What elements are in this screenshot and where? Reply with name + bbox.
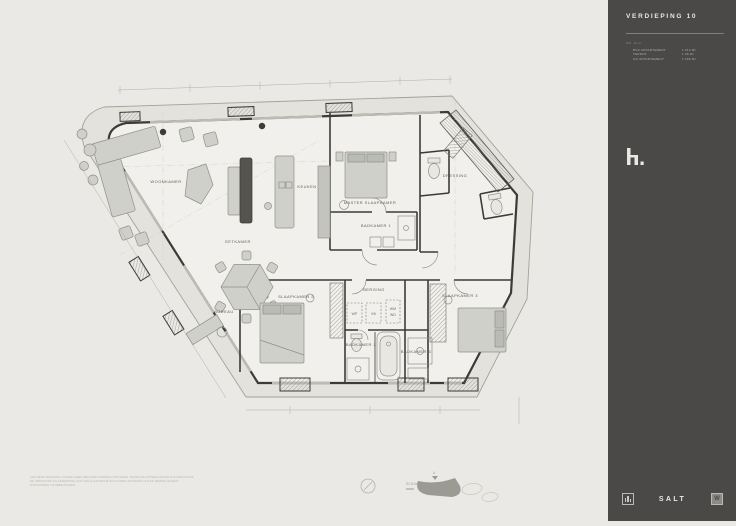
- bar: [627, 496, 628, 502]
- kitchen-island: [275, 156, 294, 228]
- kitchen-cabinets: [318, 166, 330, 238]
- compass-needle: [364, 482, 372, 490]
- plan-area: WOONKAMER EETKAMER KEUKEN MASTER SLAAPKA…: [0, 0, 608, 521]
- legend: SCHAAL 1:100 A: [361, 471, 499, 503]
- toilet: [428, 158, 440, 179]
- apartment-number: NR. 10.2: [626, 41, 726, 45]
- divider: [626, 33, 724, 34]
- room-label-slaapkamer3: SLAAPKAMER 3: [442, 293, 478, 298]
- armchair: [203, 131, 219, 147]
- brand-monogram-h-icon: [627, 148, 647, 172]
- plant: [77, 129, 87, 139]
- site-locator-map: A: [417, 471, 498, 503]
- plant: [84, 144, 96, 156]
- appliance-label-wd: WD: [390, 313, 396, 317]
- disclaimer-line-2: DE INRICHTING EN AFWERKING ZIJN TER ILLU…: [30, 479, 179, 483]
- info-value: ± 186 M²: [682, 57, 696, 62]
- bar: [630, 499, 631, 502]
- master-bed: [336, 152, 396, 198]
- disclaimer-line-1: AAN DEZE TEKENING KUNNEN GEEN RECHTEN WO…: [30, 475, 194, 479]
- info-row: GO APPARTEMENT ± 186 M²: [626, 57, 726, 62]
- disclaimer-block: AAN DEZE TEKENING KUNNEN GEEN RECHTEN WO…: [30, 475, 194, 487]
- floor-title: VERDIEPING 10: [626, 13, 697, 20]
- disclaimer-line-3: WIJZIGINGEN VOORBEHOUDEN.: [30, 483, 76, 487]
- locator-neighbor-building: [481, 491, 498, 502]
- sideboard: [228, 167, 240, 215]
- room-label-berging: BERGING: [363, 287, 385, 292]
- floor-plan: WOONKAMER EETKAMER KEUKEN MASTER SLAAPKA…: [0, 0, 608, 521]
- locator-neighbor-building: [461, 482, 482, 496]
- armchair: [179, 126, 195, 142]
- locator-building-highlight: [417, 478, 461, 497]
- partner-logo-building-icon: [622, 493, 634, 505]
- room-label-slaapkamer2: SLAAPKAMER 2: [278, 294, 314, 299]
- appliance-label-wp: WP: [352, 312, 358, 316]
- bar: [625, 498, 626, 502]
- room-label-badkamer1: BADKAMER 1: [361, 223, 392, 228]
- footer-logos: SALT W: [622, 493, 723, 505]
- appliance-label-wm: WM: [390, 307, 396, 311]
- room-label-bureau: BUREAU: [214, 309, 233, 314]
- partner-logo-w-icon: W: [711, 493, 723, 505]
- room-label-woonkamer: WOONKAMER: [150, 179, 181, 184]
- room-label-master: MASTER SLAAPKAMER: [344, 200, 397, 205]
- kitchen-island-dark: [240, 158, 252, 223]
- bed-3: [458, 308, 506, 352]
- title-block-sidebar: VERDIEPING 10 NR. 10.2 BVO APPARTEMENT ±…: [608, 0, 736, 521]
- stool: [265, 203, 272, 210]
- room-label-eetkamer: EETKAMER: [225, 239, 251, 244]
- room-label-keuken: KEUKEN: [297, 184, 316, 189]
- room-label-badkamer3: BADKAMER 3: [401, 349, 432, 354]
- appliance-label-vb: VB: [371, 312, 376, 316]
- info-label: GO APPARTEMENT: [626, 57, 682, 62]
- locator-marker-icon: [432, 476, 438, 480]
- plan-sheet: WOONKAMER EETKAMER KEUKEN MASTER SLAAPKA…: [0, 0, 736, 521]
- room-label-dressing: DRESSING: [443, 173, 468, 178]
- salt-wordmark: SALT: [659, 496, 686, 503]
- locator-marker-label: A: [433, 471, 436, 475]
- plant: [80, 162, 89, 171]
- plant: [88, 175, 98, 185]
- bed-2: [260, 303, 304, 363]
- area-info-table: NR. 10.2 BVO APPARTEMENT ± 214 M² TERRAS…: [626, 41, 726, 62]
- room-label-badkamer2: BADKAMER 2: [346, 342, 377, 347]
